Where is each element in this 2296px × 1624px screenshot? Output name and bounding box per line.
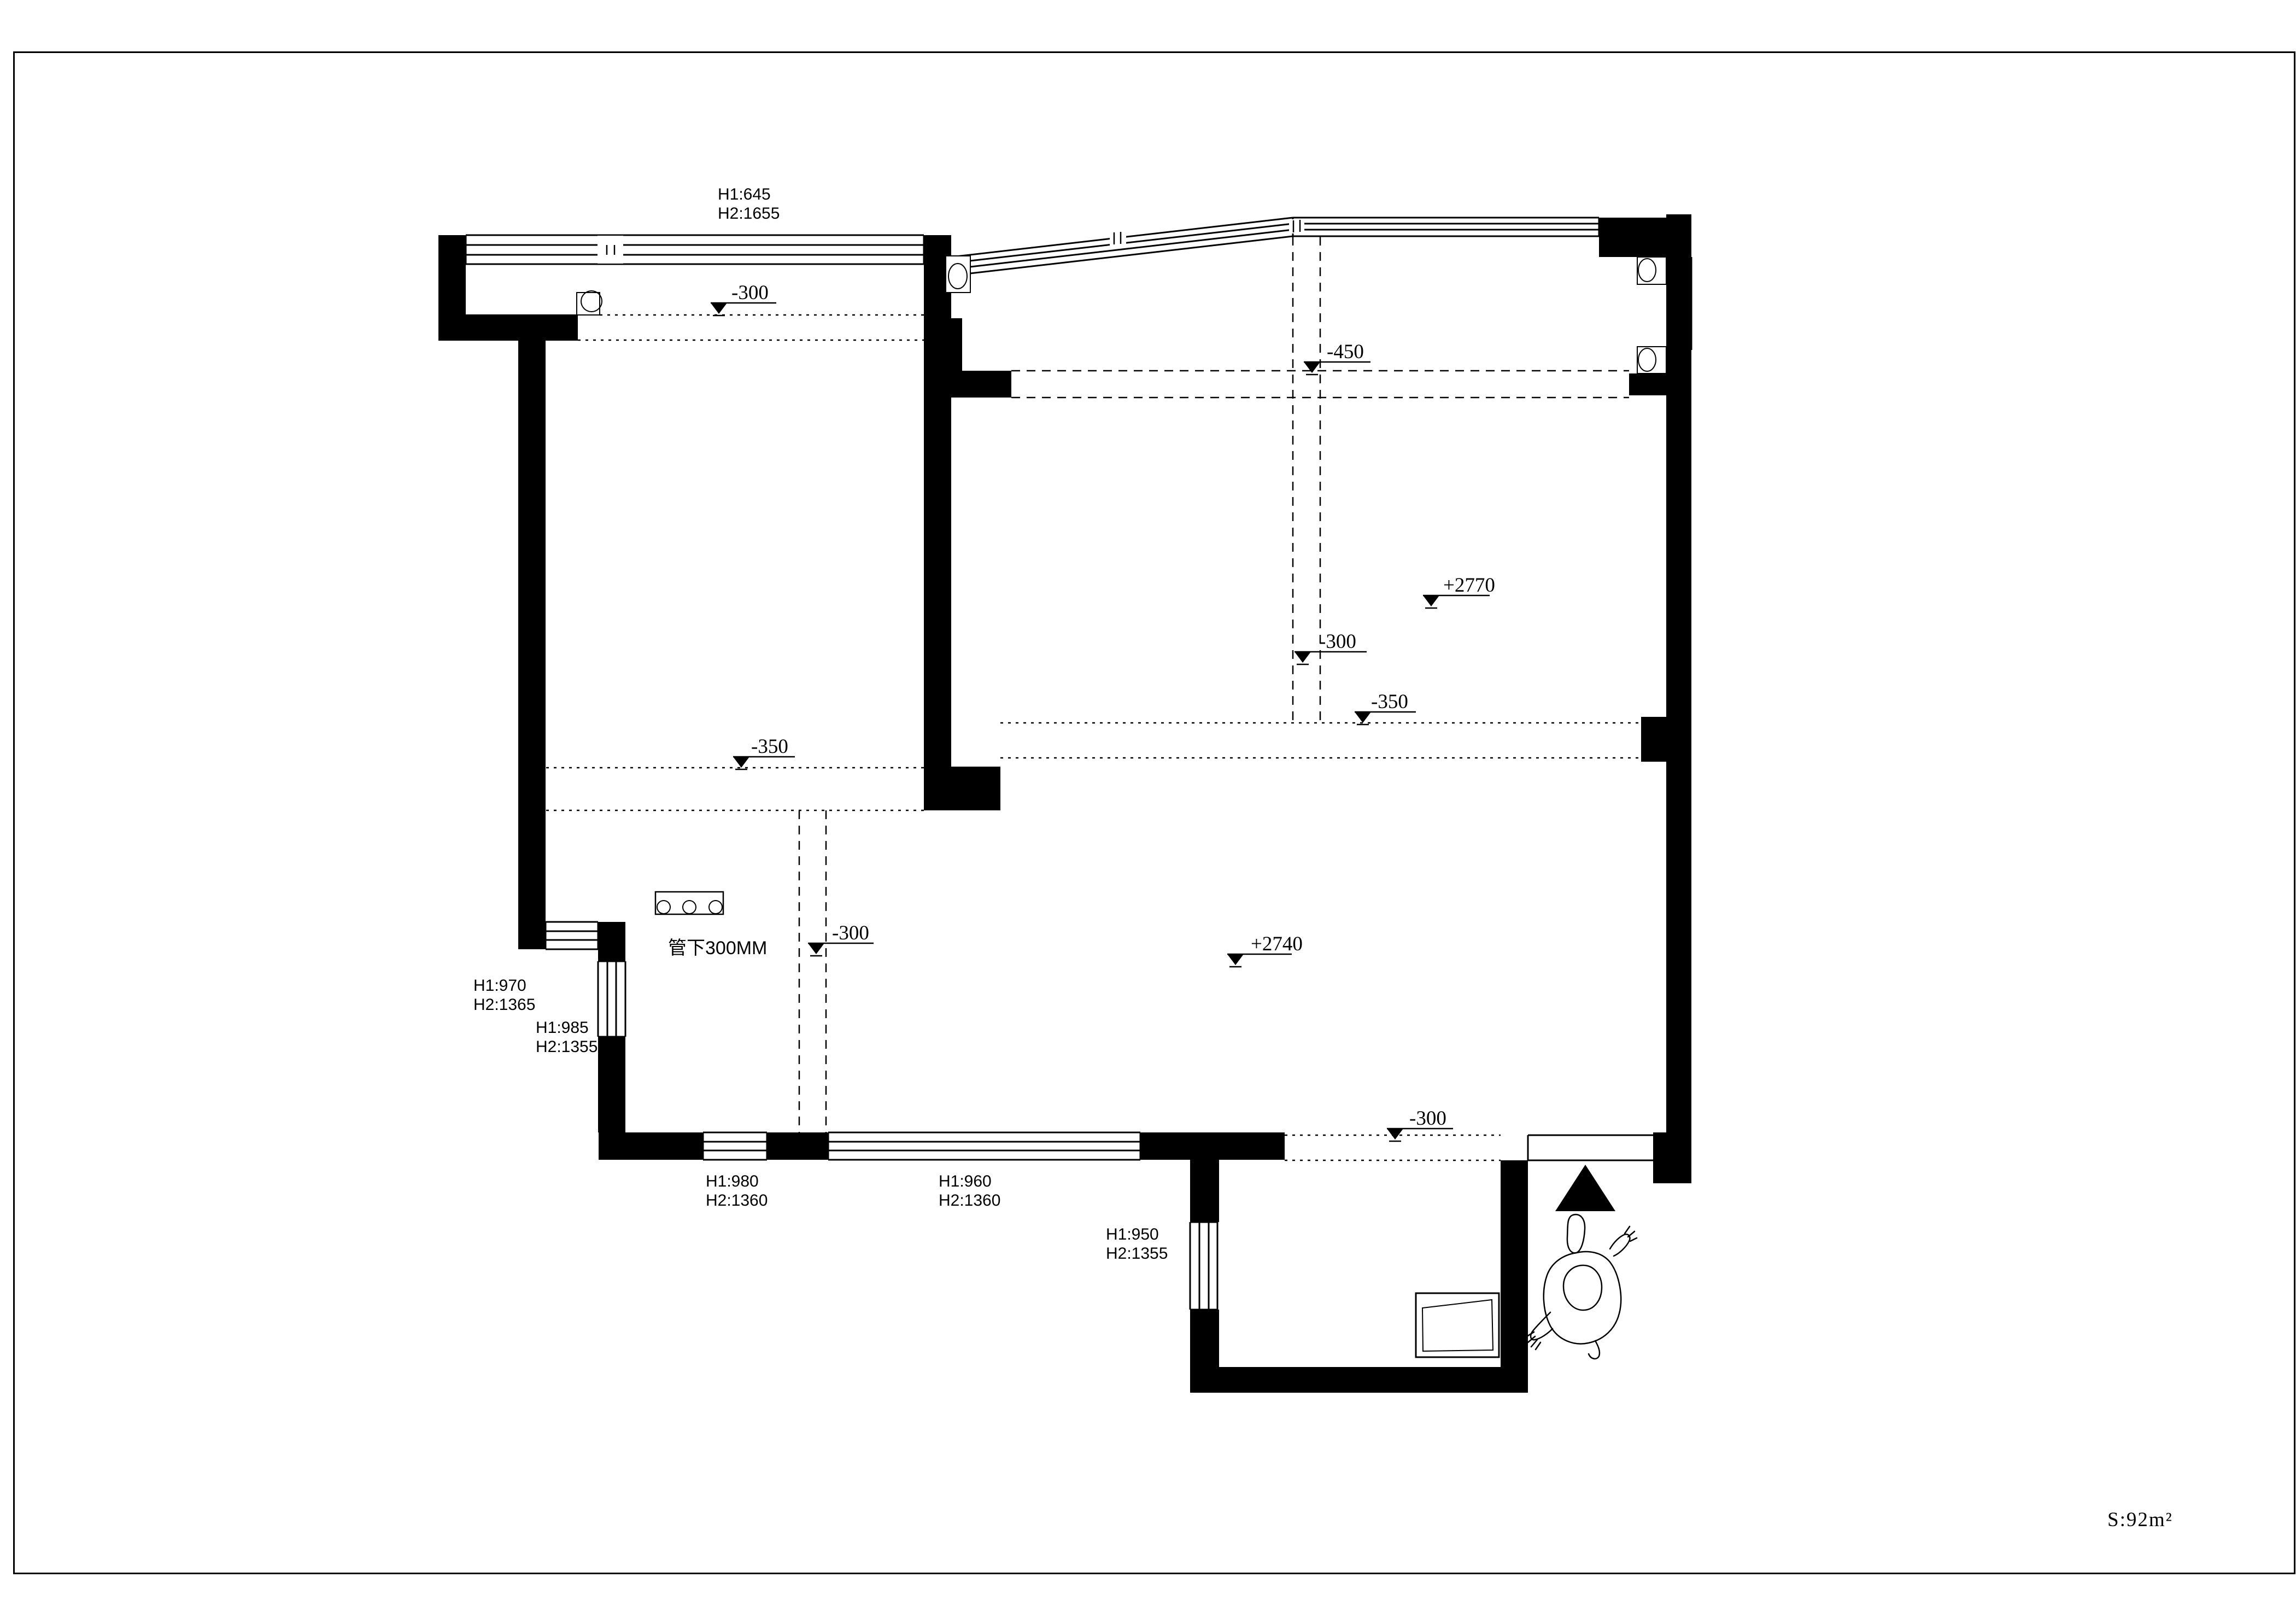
- window-height-label-line: H1:960: [939, 1172, 992, 1191]
- elevation-marker-text: -300: [1319, 630, 1356, 653]
- elevation-marker-triangle: [733, 757, 749, 768]
- wall-segment: [518, 341, 546, 949]
- window-height-label-line: H1:950: [1106, 1225, 1159, 1244]
- entry-arrow: [1555, 1165, 1615, 1211]
- window-height-label-line: H2:1360: [939, 1191, 1000, 1210]
- elevation-marker-triangle: [1423, 595, 1439, 606]
- elevation-marker-triangle: [1355, 712, 1371, 723]
- elevation-marker-text: +2770: [1443, 574, 1495, 597]
- window-height-label-line: H2:1365: [473, 995, 535, 1014]
- elevation-marker-text: -450: [1327, 340, 1364, 364]
- pipe-note: 管下300MM: [668, 933, 767, 960]
- stove-burner: [657, 901, 670, 914]
- window-break-box: [598, 236, 623, 264]
- elevation-marker-triangle: [808, 943, 824, 954]
- person-figure: [1567, 1214, 1585, 1253]
- floor-plan-sheet: H1:645H2:1655H1:970H2:1365H1:985H2:1355H…: [0, 0, 2296, 1624]
- wall-segment: [1140, 1132, 1285, 1160]
- wall-segment: [1629, 373, 1666, 395]
- stove-burner: [709, 901, 722, 914]
- person-figure: [1527, 1332, 1541, 1350]
- wall-segment: [1653, 1132, 1691, 1183]
- area-label: S:92m²: [2107, 1508, 2173, 1532]
- window-height-label-line: H1:985: [536, 1018, 589, 1037]
- person-figure: [1563, 1265, 1602, 1310]
- entry-mat-outer: [1416, 1293, 1499, 1357]
- elevation-marker-text: -300: [731, 281, 769, 305]
- person-figure: [1589, 1341, 1600, 1359]
- window-height-label-line: H1:970: [473, 976, 526, 995]
- wall-segment: [598, 1037, 625, 1132]
- wall-segment: [1641, 717, 1666, 762]
- window-height-label-line: H1:645: [718, 185, 771, 204]
- window-height-label-line: H1:980: [706, 1172, 759, 1191]
- plan-drawing-layer: [0, 0, 2296, 1624]
- wall-segment: [1190, 1160, 1219, 1222]
- elevation-marker-triangle: [1387, 1129, 1403, 1140]
- window-height-label-line: H2:1360: [706, 1191, 768, 1210]
- wall-segment: [767, 1132, 828, 1160]
- wall-segment: [951, 318, 962, 371]
- window-height-label-line: H2:1655: [718, 204, 780, 223]
- person-figure: [1531, 1312, 1553, 1340]
- stove-burner: [683, 901, 696, 914]
- elevation-marker-triangle: [1227, 954, 1244, 965]
- window-height-label-line: H2:1355: [1106, 1244, 1168, 1263]
- wall-segment: [599, 1132, 703, 1160]
- elevation-marker-text: -350: [751, 735, 788, 758]
- wall-segment: [1190, 1367, 1528, 1393]
- wall-segment: [438, 235, 466, 314]
- entry-mat-inner: [1422, 1300, 1493, 1351]
- window-break-box: [1110, 232, 1126, 246]
- stove-outline: [655, 892, 723, 914]
- wall-segment: [1666, 214, 1691, 1135]
- wall-segment: [1190, 1310, 1219, 1367]
- wall-segment: [438, 314, 578, 341]
- wall-segment: [924, 767, 1000, 810]
- elevation-marker-text: -350: [1371, 690, 1408, 714]
- window-height-label-line: H2:1355: [536, 1037, 598, 1056]
- wall-segment: [598, 922, 625, 961]
- elevation-marker-text: -300: [832, 921, 869, 945]
- wall-segment: [1599, 218, 1691, 257]
- wall-segment: [1501, 1160, 1528, 1393]
- wall-segment: [951, 371, 1011, 398]
- elevation-marker-text: +2740: [1251, 932, 1303, 956]
- elevation-marker-text: -300: [1409, 1107, 1446, 1130]
- elevation-marker-triangle: [711, 303, 727, 314]
- person-figure: [1610, 1234, 1630, 1256]
- elevation-marker-triangle: [1295, 652, 1311, 663]
- wall-segment: [924, 235, 951, 767]
- window-break-box: [1289, 219, 1304, 233]
